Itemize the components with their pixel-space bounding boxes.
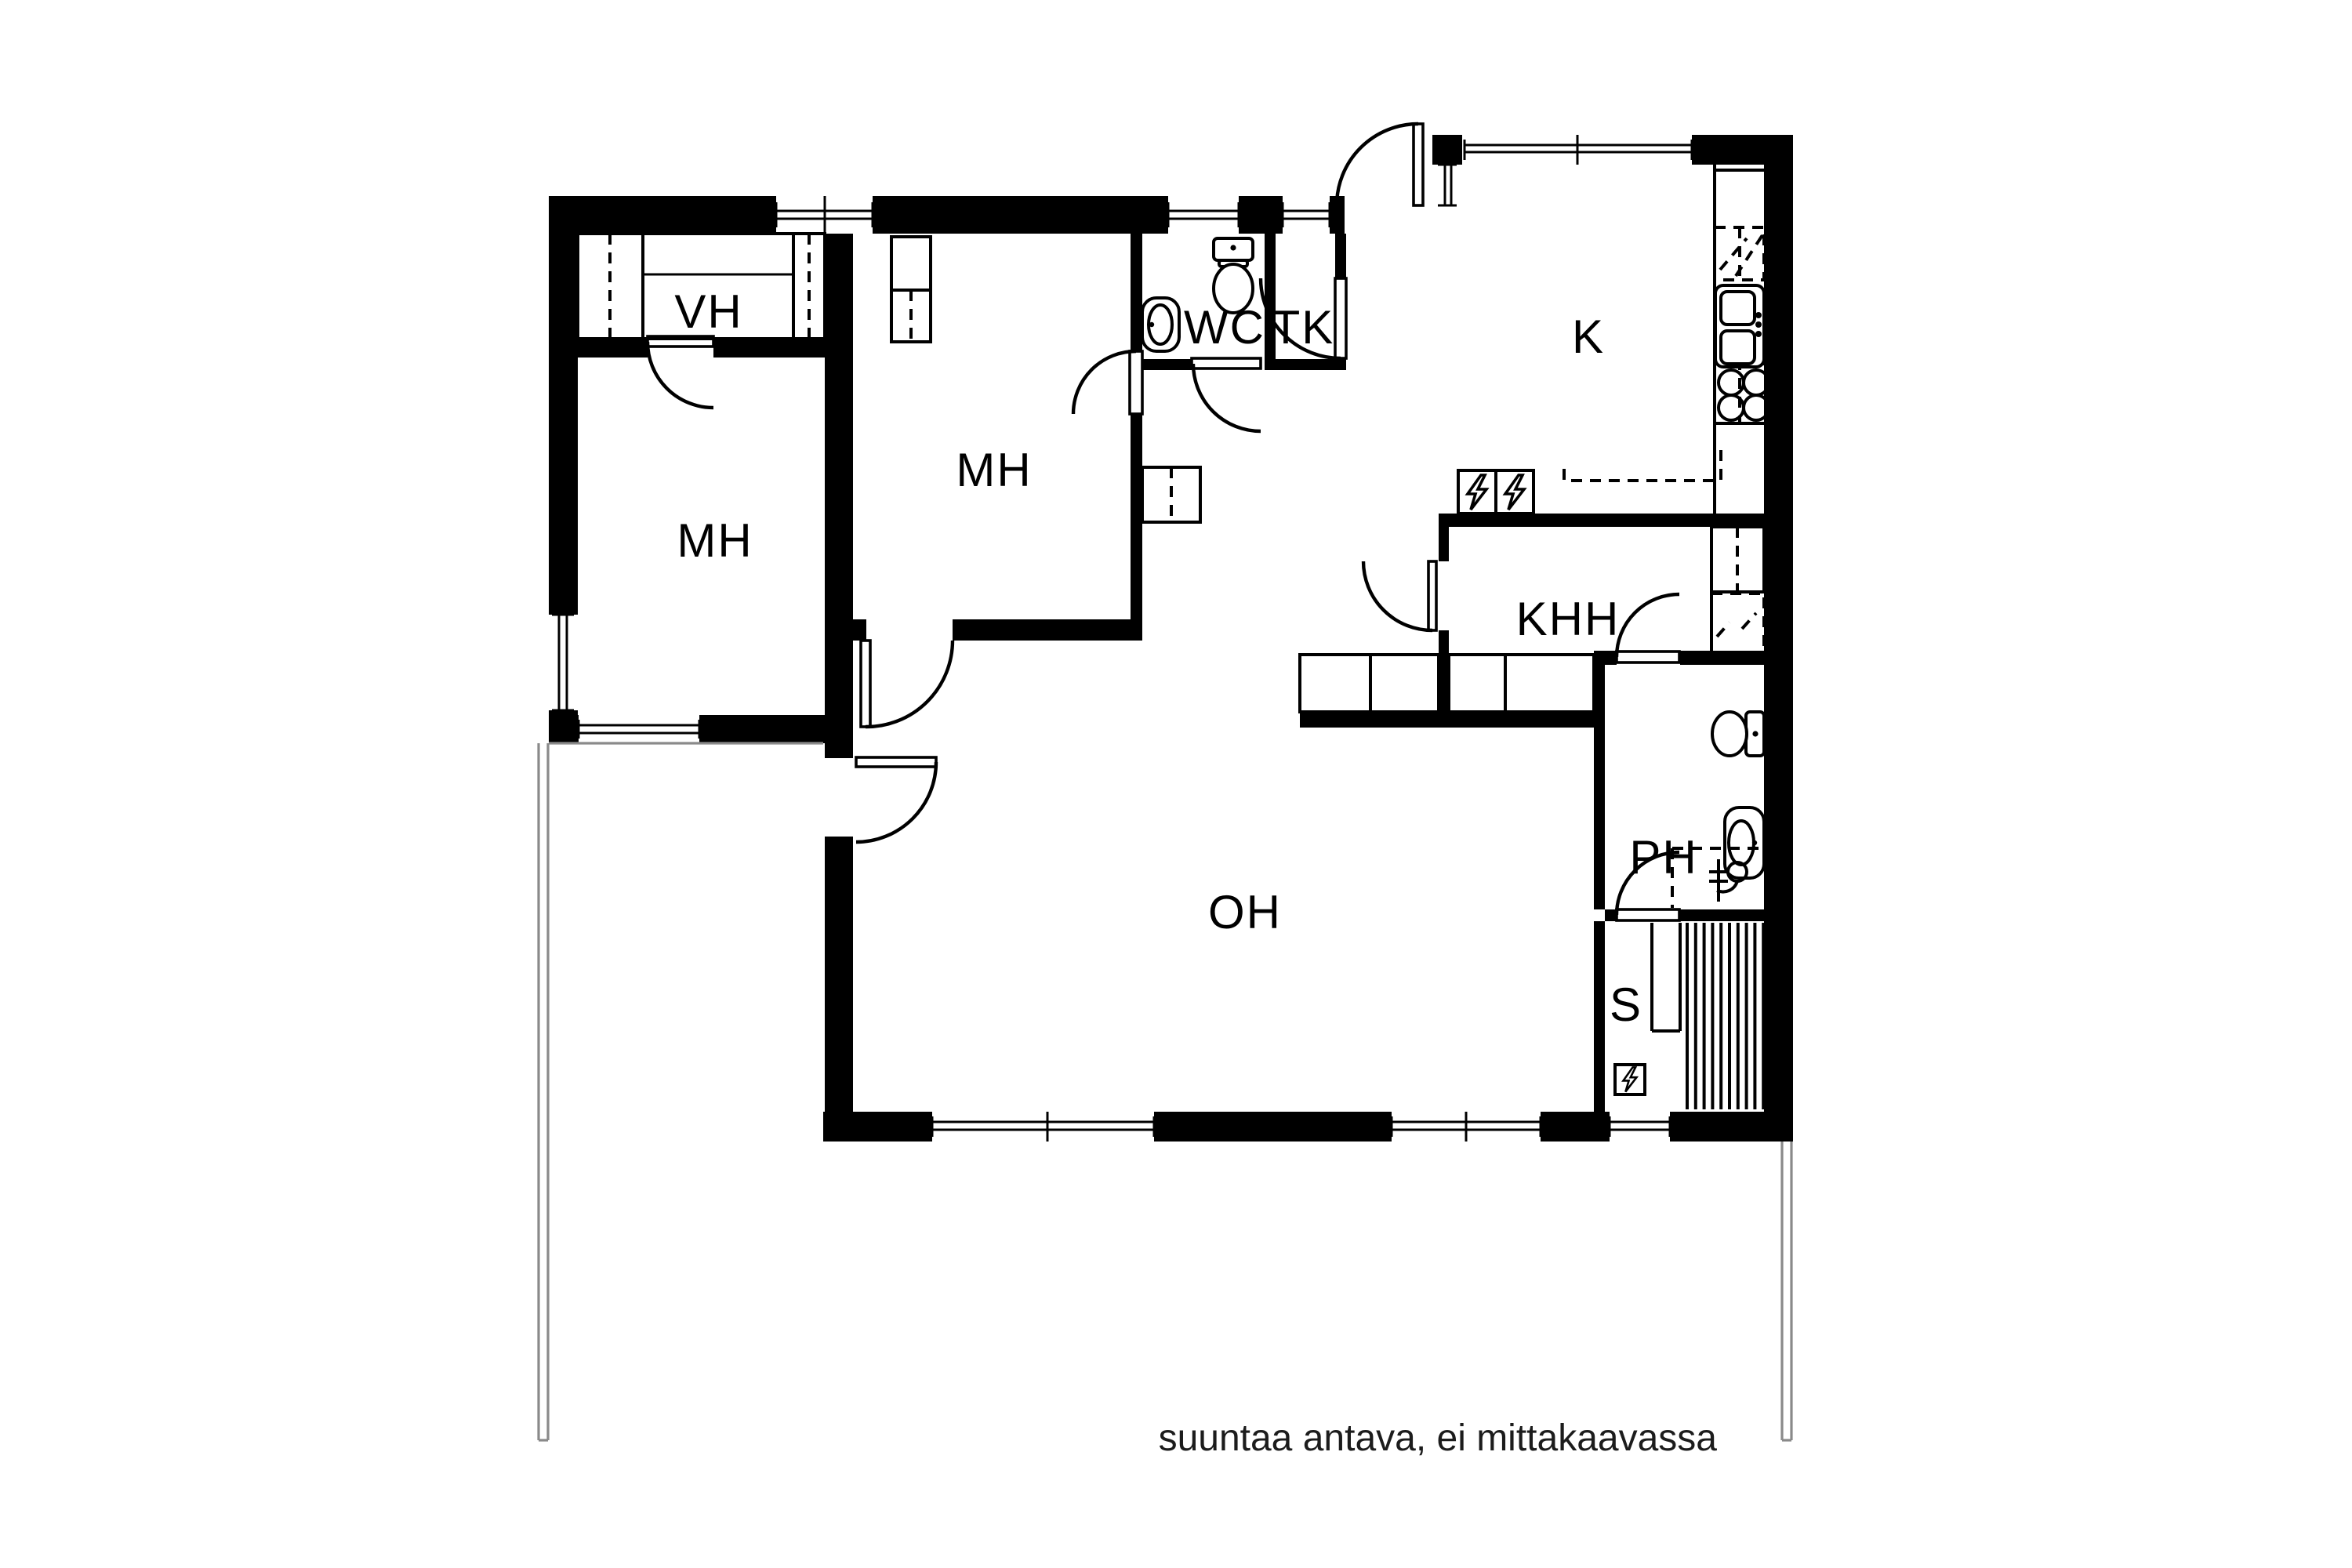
wardrobe-mh2 [891, 237, 931, 342]
closet-hall [1142, 467, 1200, 522]
appliance-washer-icon [1458, 470, 1496, 514]
door-khh-west [1363, 561, 1436, 630]
room-label-oh: OH [1208, 886, 1282, 938]
sauna-stove-icon [1615, 1065, 1645, 1094]
room-label-ph: PH [1629, 831, 1697, 884]
kitchen-sink-icon [1715, 285, 1764, 367]
appliance-dryer-icon [1496, 470, 1534, 514]
door-vh [648, 336, 713, 408]
window-oh-1 [932, 1112, 1154, 1142]
scale-disclaimer: suuntaa antava, ei mittakaavassa [1159, 1417, 1718, 1459]
window-top-wc [1168, 196, 1239, 234]
room-label-tk: TK [1272, 301, 1335, 354]
window-entry-sidelight [1432, 165, 1462, 205]
floor-plan-canvas: VH MH MH WC TK K KHH PH OH S suuntaa ant… [0, 0, 2352, 1568]
khh-cabinet [1711, 527, 1764, 592]
room-label-mh-right: MH [956, 444, 1032, 496]
window-mh-bottom [579, 715, 699, 743]
door-ph [1617, 594, 1679, 662]
room-label-khh: KHH [1516, 593, 1621, 645]
room-label-vh: VH [674, 285, 742, 338]
window-left-wall [549, 615, 578, 710]
room-label-k: K [1572, 310, 1605, 363]
room-label-mh-left: MH [677, 514, 753, 567]
room-label-wc: WC [1184, 301, 1265, 354]
window-oh-2 [1392, 1112, 1541, 1142]
stove-icon [1719, 370, 1769, 420]
khh-counter-right [1449, 655, 1594, 712]
door-mh2 [1073, 351, 1142, 414]
window-sauna [1610, 1112, 1670, 1142]
room-label-s: S [1610, 978, 1642, 1031]
sink-icon [1142, 298, 1179, 351]
door-mh-left-to-oh [856, 757, 936, 842]
toilet-ph-icon [1712, 712, 1764, 756]
window-top-tk [1283, 196, 1330, 234]
window-kitchen [1465, 135, 1692, 165]
front-door [1337, 124, 1423, 205]
khh-counter-left [1300, 655, 1439, 712]
door-hall-to-oh [861, 641, 953, 727]
door-wc [1192, 358, 1261, 431]
sauna-benches [1652, 923, 1763, 1109]
counter-dashed-line [1564, 443, 1721, 481]
window-top-mh2 [776, 196, 873, 234]
